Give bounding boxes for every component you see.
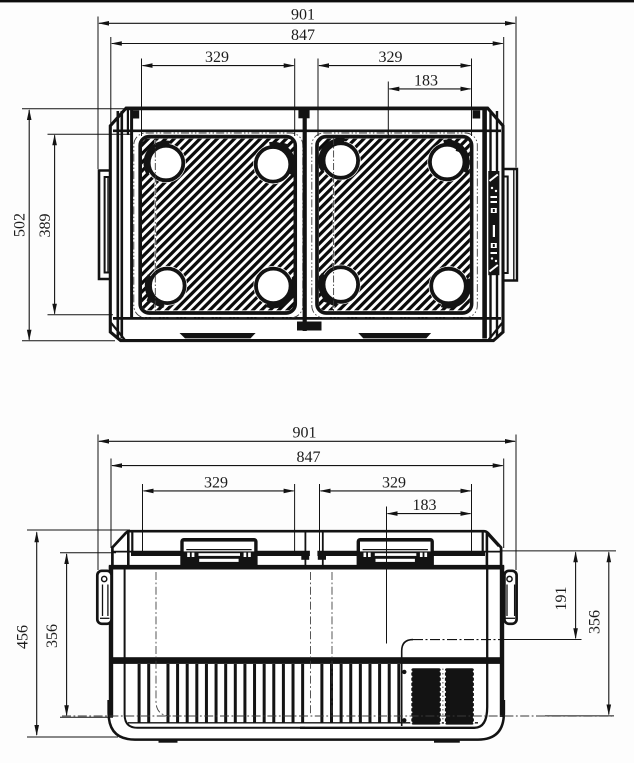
svg-text:329: 329 [382, 475, 406, 492]
svg-text:356: 356 [44, 624, 61, 648]
svg-text:191: 191 [553, 587, 570, 611]
svg-text:329: 329 [379, 49, 403, 66]
svg-text:901: 901 [293, 425, 317, 442]
svg-text:847: 847 [291, 27, 315, 44]
svg-text:183: 183 [413, 497, 437, 514]
svg-text:502: 502 [11, 213, 28, 237]
svg-text:329: 329 [204, 475, 228, 492]
svg-text:329: 329 [205, 49, 229, 66]
svg-text:356: 356 [586, 610, 603, 634]
svg-text:456: 456 [15, 625, 32, 649]
svg-text:901: 901 [291, 7, 315, 24]
svg-text:847: 847 [297, 449, 321, 466]
svg-text:183: 183 [414, 73, 438, 90]
svg-text:389: 389 [37, 214, 54, 238]
